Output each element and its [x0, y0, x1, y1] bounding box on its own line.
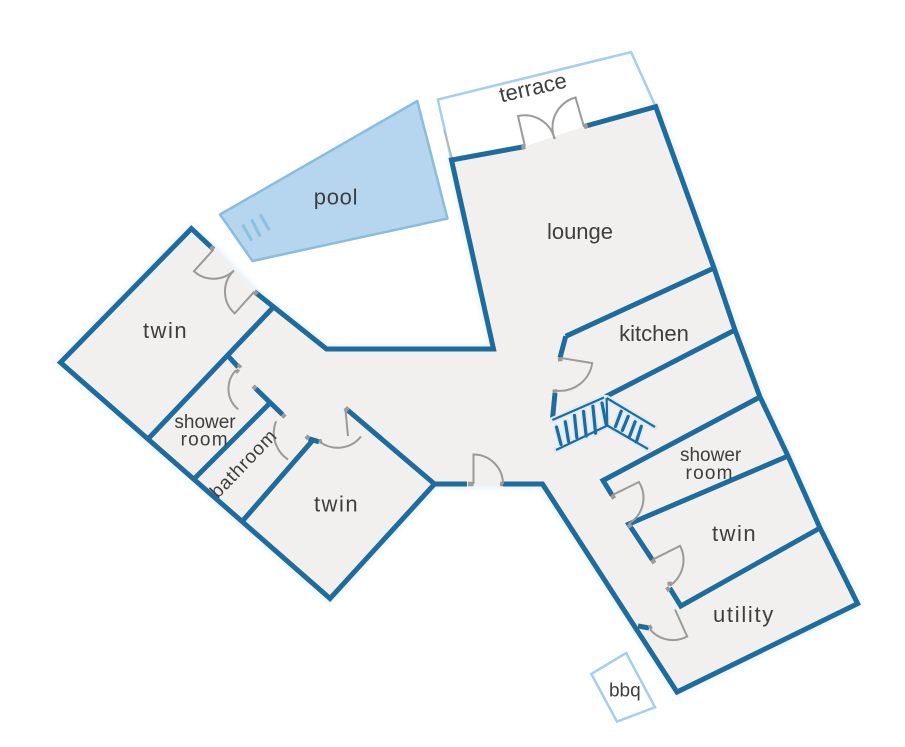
- svg-text:kitchen: kitchen: [619, 321, 689, 346]
- svg-text:utility: utility: [713, 602, 775, 627]
- svg-text:lounge: lounge: [547, 219, 613, 244]
- svg-text:twin: twin: [143, 318, 188, 343]
- svg-text:twin: twin: [314, 492, 359, 517]
- svg-text:bbq: bbq: [609, 680, 641, 701]
- svg-text:room: room: [686, 463, 734, 484]
- svg-text:pool: pool: [314, 184, 358, 209]
- svg-text:twin: twin: [712, 521, 757, 546]
- svg-text:room: room: [181, 430, 229, 451]
